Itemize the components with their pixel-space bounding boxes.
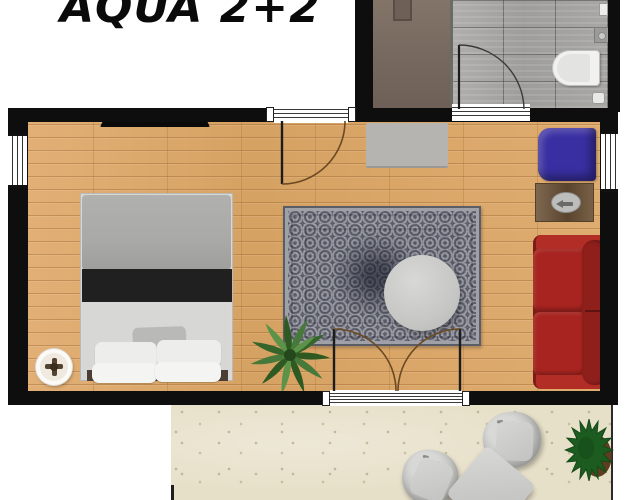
basin xyxy=(551,192,581,213)
pillow xyxy=(92,363,157,383)
flush-plate xyxy=(594,27,609,43)
plan-title: AQUA 2+2 xyxy=(60,0,321,33)
floor-plan-canvas: AQUA 2+2 xyxy=(0,0,637,500)
hallway-bathroom-divider xyxy=(450,0,453,108)
bathroom-door-sill xyxy=(452,104,530,121)
sand-terrace xyxy=(171,405,613,500)
flower-center xyxy=(50,363,58,371)
console-table xyxy=(535,183,594,222)
entry-door-sill xyxy=(274,106,348,123)
hallway-handle-detail xyxy=(393,0,412,21)
terrace-border-post xyxy=(171,485,174,500)
bed xyxy=(80,193,233,381)
bed-blanket xyxy=(82,269,232,302)
entry-mat xyxy=(366,123,448,168)
entry-hallway xyxy=(373,0,452,108)
window-left xyxy=(8,133,27,188)
terrace-door-sill xyxy=(330,390,462,406)
bathroom xyxy=(452,0,610,108)
bedside-table xyxy=(36,349,72,385)
bathroom-right-wall xyxy=(608,0,620,112)
wall-bottom xyxy=(8,391,618,405)
toilet-brush xyxy=(592,92,605,104)
mini-fridge-cabinet xyxy=(538,128,596,181)
flush-button xyxy=(598,32,606,40)
toilet-paper-holder xyxy=(599,3,608,16)
arrow-shaft xyxy=(562,202,573,206)
bush-plant xyxy=(564,417,614,483)
door-jamb xyxy=(348,107,356,122)
door-jamb xyxy=(462,391,470,406)
toilet xyxy=(552,50,600,86)
pillow xyxy=(155,362,221,382)
bed-duvet xyxy=(82,195,231,270)
sofa xyxy=(533,235,610,389)
door-jamb xyxy=(266,107,274,122)
door-jamb xyxy=(322,391,330,406)
round-table xyxy=(384,255,460,331)
sofa-cushion xyxy=(533,249,586,311)
sofa-cushion xyxy=(533,312,586,375)
window-right xyxy=(601,131,618,192)
palm-plant xyxy=(240,305,340,405)
hallway-left-wall xyxy=(355,0,373,112)
